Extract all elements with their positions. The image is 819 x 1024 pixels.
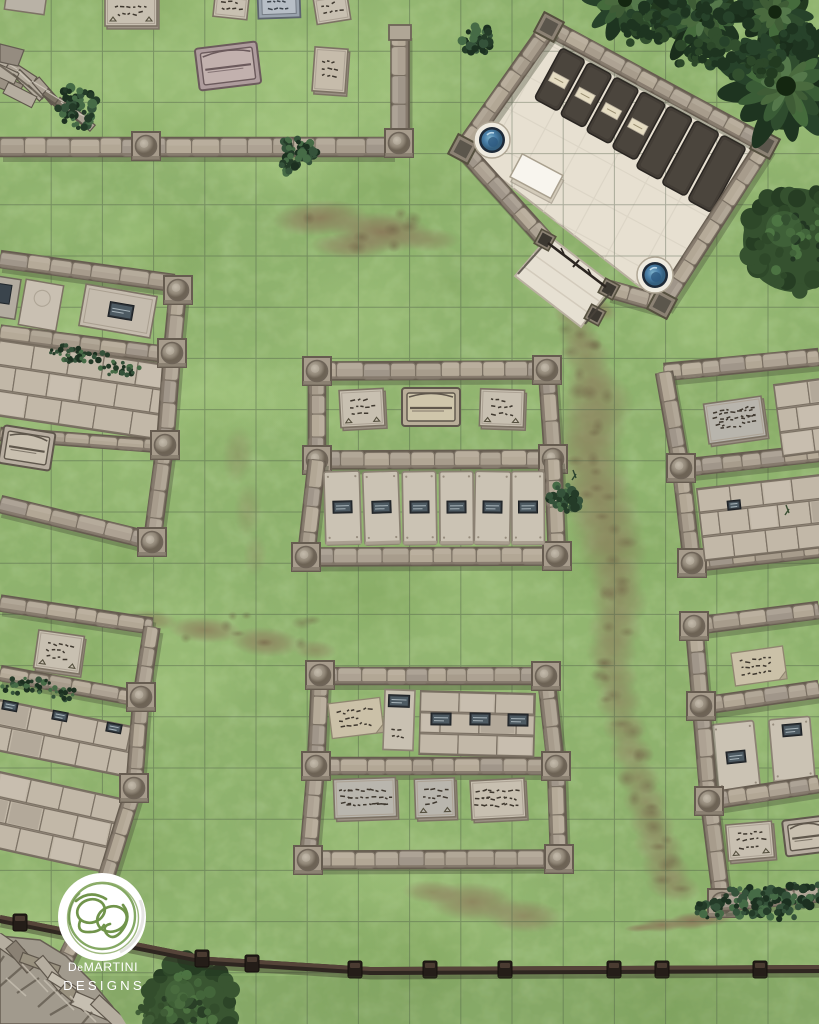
svg-text:DeMARTINI: DeMARTINI bbox=[68, 960, 138, 974]
svg-text:DESIGNS: DESIGNS bbox=[63, 978, 145, 993]
